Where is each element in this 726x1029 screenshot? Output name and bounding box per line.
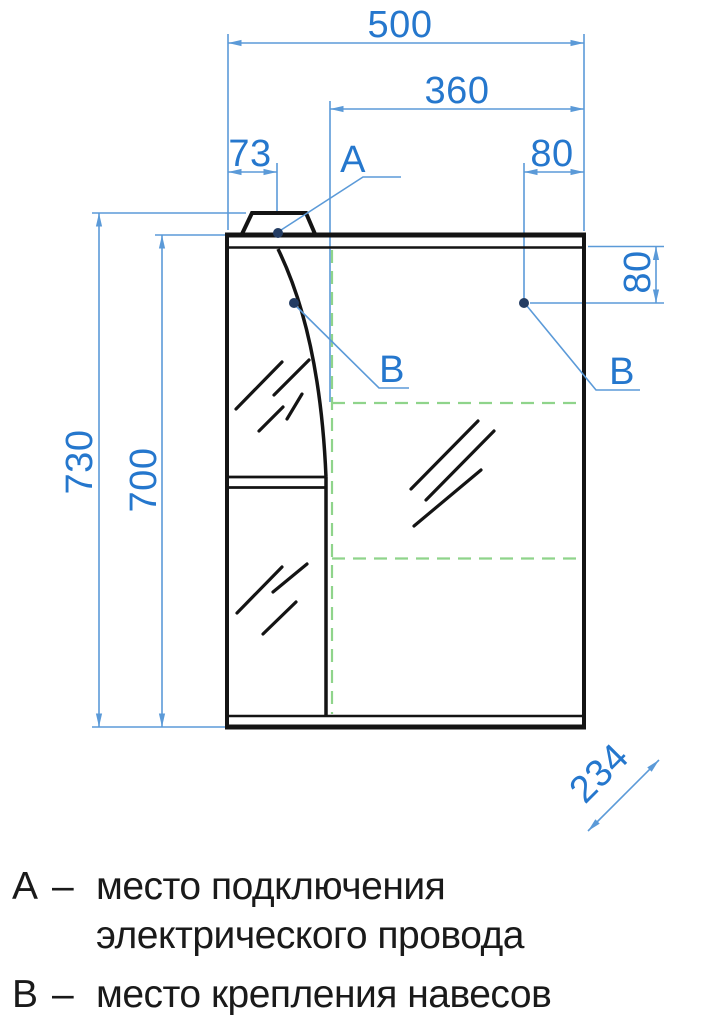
legend-key-a: А — [12, 862, 52, 960]
dim-label-73: 73 — [228, 133, 271, 175]
dim-label-234-depth: 234 — [562, 736, 638, 812]
legend-description-b: место крепления навесов — [96, 970, 720, 1019]
hidden-shelf-lines — [332, 250, 582, 714]
mirror-hatch-right-door — [411, 421, 494, 526]
legend-description-a: место подключения электрического провода — [96, 862, 720, 960]
legend-item-a: А – место подключения электрического про… — [12, 862, 720, 960]
extension-lines — [92, 34, 664, 727]
mirror-hatch-upper-left-door — [236, 360, 309, 431]
point-a-dot — [273, 228, 283, 238]
dim-label-500: 500 — [368, 4, 433, 46]
point-b-right-label: В — [609, 351, 635, 393]
cabinet-dimension-drawing: 500 360 73 80 730 700 80 234 А В В — [0, 0, 726, 862]
curved-door-edge — [278, 249, 326, 477]
legend: А – место подключения электрического про… — [12, 862, 720, 1029]
point-b-right-dot — [519, 298, 529, 308]
cabinet-outline — [225, 213, 586, 729]
point-b-left-label: В — [379, 349, 405, 391]
dim-label-730: 730 — [59, 430, 101, 495]
dimension-lines — [99, 43, 659, 831]
mirror-hatch-lower-left-door — [237, 564, 307, 634]
dim-label-80-top: 80 — [530, 133, 573, 175]
legend-separator-a: – — [52, 862, 96, 960]
legend-key-b: В — [12, 970, 52, 1019]
dim-label-360: 360 — [425, 70, 490, 112]
point-b-left-dot — [289, 298, 299, 308]
legend-item-b: В – место крепления навесов — [12, 970, 720, 1019]
point-a-label: А — [340, 139, 366, 181]
dim-label-700: 700 — [123, 448, 165, 513]
legend-separator-b: – — [52, 970, 96, 1019]
dim-label-80-right: 80 — [617, 250, 659, 293]
